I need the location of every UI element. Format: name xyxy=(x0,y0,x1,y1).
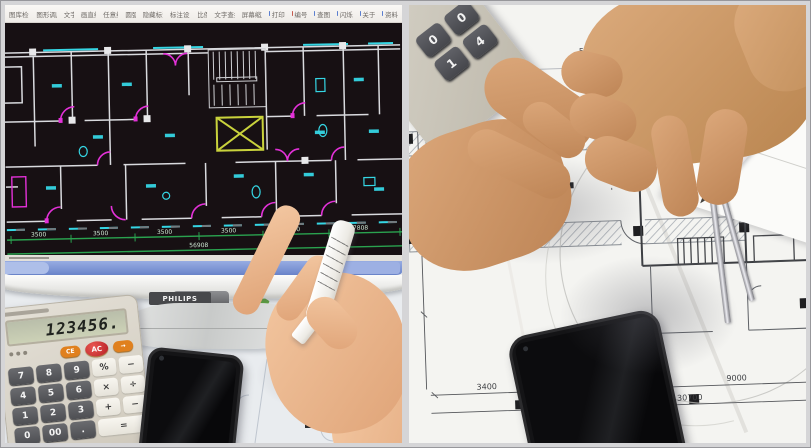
key-minus: − xyxy=(118,355,144,374)
system-tray xyxy=(342,262,400,274)
key-divide: ÷ xyxy=(120,375,146,394)
svg-text:3500: 3500 xyxy=(221,227,237,234)
desk-calculator: 123456. CE AC → 7 8 9 % − 4 5 6 × ÷ 1 2 … xyxy=(5,294,153,443)
elevator-symbol xyxy=(217,117,264,151)
calculator-keypad: 7 8 9 % − 4 5 6 × ÷ 1 2 3 + − 0 00 . = xyxy=(8,355,143,443)
tag-icon xyxy=(292,11,293,16)
cad-menu-item: 任意线 xyxy=(103,9,118,19)
key-8: 8 xyxy=(36,363,63,383)
svg-text:3400: 3400 xyxy=(476,382,497,392)
start-button xyxy=(5,262,49,274)
key-multiply: × xyxy=(93,377,119,396)
key-dot: . xyxy=(70,420,97,440)
cad-menu-item: 关于 xyxy=(360,9,376,19)
key-5: 5 xyxy=(38,383,65,403)
calculator-brand-mark xyxy=(5,308,49,317)
cad-menu-item: 标注设置 xyxy=(170,9,190,19)
key-4: 4 xyxy=(10,386,37,406)
cad-menu-item: 资料 xyxy=(382,9,398,19)
cad-menu-item: 文字查找 xyxy=(214,9,234,19)
dimension-total: 56908 xyxy=(189,242,208,249)
cad-menu-item: 屏幕缩放 xyxy=(242,9,262,19)
cad-menu-item: 隐藏标注 xyxy=(143,9,163,19)
info-icon xyxy=(360,11,361,16)
key-0: 0 xyxy=(14,426,41,443)
ce-button: CE xyxy=(60,345,81,358)
key-percent: % xyxy=(91,357,117,376)
flash-icon xyxy=(337,11,338,16)
key-plus: + xyxy=(96,397,122,416)
cad-toolbar: 图库检索 图形调用 文字 画直线 任意线 圆弧 隐藏标注 标注设置 比例 文字查… xyxy=(5,5,402,23)
backspace-button: → xyxy=(113,340,134,353)
key-00: 00 xyxy=(42,423,69,443)
cad-menu-item: 图形调用 xyxy=(36,9,56,19)
key-3: 3 xyxy=(68,400,95,420)
key-2: 2 xyxy=(40,403,67,423)
cad-menu-item: 画直线 xyxy=(81,9,96,19)
svg-text:3500: 3500 xyxy=(157,229,173,236)
cad-menu-item: 图库检索 xyxy=(9,9,29,19)
cad-menu-item: 闪烁 xyxy=(337,9,353,19)
printer-icon xyxy=(269,11,270,16)
cad-menu-item: 比例 xyxy=(197,9,207,19)
cad-menu-item: 编号 xyxy=(292,9,308,19)
key-6: 6 xyxy=(66,380,93,400)
right-photo-blueprint-work: 3400 9000 30700 520 200 0 0 xyxy=(409,5,806,443)
svg-text:7808: 7808 xyxy=(353,225,369,232)
calculator-mem-buttons xyxy=(9,351,27,357)
ac-button: AC xyxy=(84,340,108,357)
phone-screen xyxy=(145,354,237,443)
cad-menu-item: 圆弧 xyxy=(125,9,135,19)
smartphone xyxy=(137,346,244,443)
svg-text:3500: 3500 xyxy=(31,231,47,238)
photo-collage-frame: 图库检索 图形调用 文字 画直线 任意线 圆弧 隐藏标注 标注设置 比例 文字查… xyxy=(0,0,811,448)
search-icon xyxy=(314,11,315,16)
key-9: 9 xyxy=(63,360,90,380)
key-7: 7 xyxy=(8,366,35,386)
key-1: 1 xyxy=(12,406,39,426)
svg-text:3500: 3500 xyxy=(93,230,109,237)
cad-menu-item: 打印 xyxy=(269,9,285,19)
svg-text:30700: 30700 xyxy=(677,393,703,403)
book-icon xyxy=(382,11,383,16)
left-photo-cad-monitor: 图库检索 图形调用 文字 画直线 任意线 圆弧 隐藏标注 标注设置 比例 文字查… xyxy=(5,5,402,443)
cad-menu-item: 查图 xyxy=(314,9,330,19)
cad-menu-item: 文字 xyxy=(64,9,74,19)
